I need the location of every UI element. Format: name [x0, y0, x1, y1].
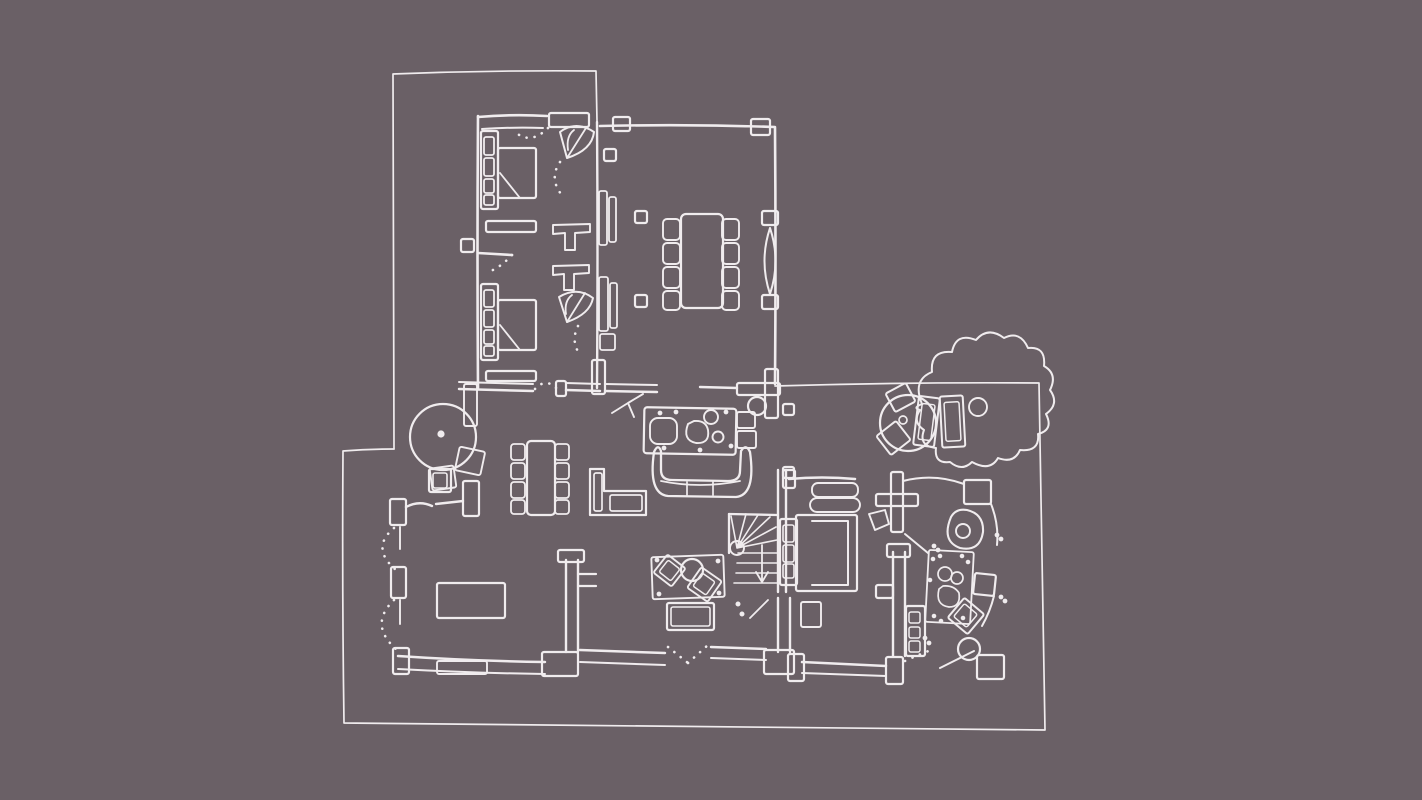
table-dot-4: [730, 445, 733, 448]
corner-dot-6: [928, 642, 931, 645]
dining-floor-post-c: [635, 295, 647, 307]
master-bench-a: [812, 483, 858, 497]
hall-bottom-wall-right-inner: [711, 658, 766, 660]
hall-cushion-a-inner: [659, 560, 680, 581]
bed2-pillow-2: [484, 310, 494, 327]
dining-chair-l4: [663, 291, 680, 310]
garden-basin-drain: [956, 524, 970, 538]
small-stool: [869, 510, 889, 530]
cross-pier-horizontal: [737, 383, 780, 395]
entry-door-dots-a: [668, 647, 688, 663]
kitchen-chair-l1: [511, 444, 525, 460]
stone-dot-1: [932, 558, 934, 560]
kitchen-chair-r2: [555, 463, 569, 479]
stone-dot-5: [933, 615, 935, 617]
hall-partition-cap: [558, 550, 584, 562]
kitchen-chair-l2: [511, 463, 525, 479]
dining-bottom-wall: [605, 391, 657, 392]
breakfast-chair-a: [455, 447, 485, 476]
stone-dot-4: [967, 561, 969, 563]
corridor-east-wall: [597, 122, 598, 388]
wardrobe1-strip-a: [599, 191, 607, 245]
hall-bottom-wall-left-inner: [580, 662, 665, 665]
stone-dot-7: [962, 617, 964, 619]
master-bench-b: [810, 498, 860, 512]
table-dot-5: [699, 449, 702, 452]
kitchen-chair-l4: [511, 500, 525, 514]
stone-blob-3: [938, 586, 959, 607]
bed1-foot-bench: [486, 221, 536, 232]
corner-pier: [592, 360, 605, 394]
corner-dot-4: [1000, 538, 1003, 541]
bed2-foot-bench: [486, 371, 536, 381]
master-top-wall: [789, 478, 855, 480]
dining-chair-l1: [663, 219, 680, 240]
wardrobe2-strip-b: [610, 283, 617, 328]
master-east-cap: [887, 544, 910, 557]
pavilion-cross-pier-h: [876, 494, 918, 506]
kitchen-chair-r4: [555, 500, 569, 514]
pavilion-top-edge: [903, 478, 964, 484]
bedroom-divider-wall: [478, 253, 512, 255]
bedroom1-door-swing-dots: [514, 128, 548, 138]
coffee-table-cushion: [650, 418, 677, 444]
bed2-mattress: [498, 300, 536, 350]
master-east-stub: [876, 585, 893, 598]
bottom-wall-pier-mid: [542, 652, 578, 676]
cabinet-shelf-1: [909, 612, 920, 623]
bedroom2-shower-door-dots: [575, 326, 581, 356]
garden-post-mid: [973, 573, 996, 596]
garden-basin: [948, 510, 984, 549]
bottom-wall-segment-b: [566, 390, 600, 391]
bedroom-wing-top-wall-inner: [482, 128, 543, 129]
master-bottom-pier-b: [886, 657, 903, 684]
kitchen-chair-r3: [555, 482, 569, 498]
hall-bench-inner: [671, 607, 710, 626]
stone-dot-2: [939, 555, 941, 557]
corner-dot-1: [933, 545, 936, 548]
rug-dot-2: [717, 560, 720, 563]
dining-table: [681, 214, 723, 308]
bed2-fold-line: [500, 325, 520, 350]
pavilion-post-top-right: [964, 480, 991, 504]
breakfast-round-table: [410, 404, 476, 470]
patio-lounger-b-inner: [944, 402, 961, 442]
patio-chair-top: [885, 383, 915, 412]
floorplan-sketch: [0, 0, 1422, 800]
master-bottom-wall-inner: [802, 673, 886, 676]
breakfast-table-center-dot: [439, 432, 444, 437]
corner-dot-3: [996, 534, 999, 537]
bed1-mattress: [498, 148, 536, 198]
hall-bottom-wall-left: [580, 650, 665, 653]
pavilion-cross-pier-v: [891, 472, 903, 532]
pavilion-edge-lower-right: [982, 596, 994, 626]
wall-post-b: [783, 467, 794, 478]
round-side-table: [748, 397, 766, 415]
understair-slash: [750, 600, 768, 618]
kitchen-chair-r1: [555, 444, 569, 460]
bedroom-wing-bottom-wall: [459, 389, 533, 391]
bedroom-wing-top-pier: [549, 113, 589, 127]
table-dot-3: [725, 411, 728, 414]
corner-dot-5: [924, 637, 927, 640]
side-table-b: [737, 431, 756, 448]
dining-chair-r2: [722, 243, 739, 264]
french-door-arc-a: [382, 528, 396, 570]
understair-dot-2: [741, 613, 744, 616]
kitchen-chair-l3: [511, 482, 525, 498]
master-pillow-3: [783, 564, 794, 578]
rug-dot-1: [656, 559, 659, 562]
stair-winder-fan: [731, 514, 777, 548]
stair-top-wall: [729, 514, 777, 515]
floor-lamp-mark: [612, 394, 643, 417]
stone-dot-6: [940, 620, 942, 622]
stair-treads: [734, 553, 777, 583]
hall-bottom-wall-right: [711, 647, 766, 649]
garden-tree-trunk: [969, 398, 987, 416]
understair-dot-1: [737, 603, 740, 606]
corner-bench-seat: [610, 495, 642, 511]
bed2-pillow-1: [484, 290, 494, 307]
coffee-table-bowl: [704, 410, 718, 424]
hall-partition-stub: [578, 574, 596, 586]
garden-corner-seat: [977, 655, 1004, 679]
kitchen-island: [437, 583, 505, 618]
dining-top-post-left: [613, 117, 630, 131]
dining-east-door-leaf: [765, 228, 776, 294]
stone-blob-2: [951, 572, 963, 584]
master-under-bed-cabinet: [801, 602, 821, 627]
hall-door-dots: [535, 383, 557, 389]
entry-door-dots-b: [688, 645, 708, 663]
hall-door-pier: [556, 381, 566, 396]
patio-table-center: [899, 416, 907, 424]
stone-blob-1: [938, 567, 952, 581]
bedroom2-desk: [553, 265, 589, 290]
table-dot-1: [659, 412, 662, 415]
bed2-pillow-4: [484, 346, 494, 356]
master-pillow-2: [783, 545, 794, 562]
wardrobe2-strip-a: [599, 277, 608, 331]
bedroom2-door-dots: [488, 255, 512, 272]
bed1-pillow-4: [484, 195, 494, 205]
bedroom-wall-post: [461, 239, 474, 252]
bed2-pillow-3: [484, 330, 494, 344]
dining-top-wall: [600, 125, 775, 127]
bed1-pillow-2: [484, 158, 494, 176]
bedroom1-desk: [553, 224, 590, 250]
wardrobe1-strip-b: [609, 197, 616, 242]
cabinet-shelf-3: [909, 641, 920, 652]
dining-chair-r3: [722, 267, 739, 288]
dining-chair-l2: [663, 243, 680, 264]
stone-dot-3: [961, 555, 963, 557]
table-dot-2: [675, 411, 678, 414]
french-door-arc-b: [382, 600, 397, 650]
bedroom2-shower-inner-arc: [566, 295, 572, 314]
corner-bench-back: [594, 473, 602, 511]
master-pillow-1: [783, 525, 794, 542]
table-dot-6: [663, 447, 666, 450]
dining-floor-post-b: [635, 211, 647, 223]
wall-post-a: [783, 404, 794, 415]
french-door-pier-b: [391, 567, 406, 598]
rug-dot-4: [718, 592, 721, 595]
kitchen-table: [527, 441, 555, 515]
dining-chair-l3: [663, 267, 680, 288]
french-door-pier-a: [390, 499, 406, 525]
master-bottom-pier-a: [788, 654, 804, 681]
bed1-fold-line: [500, 173, 520, 198]
dining-chair-r1: [722, 219, 739, 240]
bedroom1-shower-door-dots: [555, 162, 561, 194]
rug-dot-3: [658, 593, 661, 596]
stone-dot-8: [929, 579, 931, 581]
mid-wall-segment: [700, 387, 737, 388]
family-room-top-wall: [406, 501, 463, 507]
garden-tree-canopy: [916, 332, 1054, 467]
window-table-inner: [433, 473, 447, 488]
bed1-pillow-3: [484, 179, 494, 193]
bed1-pillow-1: [484, 137, 494, 155]
dining-bottom-wall-inner: [605, 384, 657, 385]
bedroom-wing-top-wall: [478, 115, 547, 117]
bottom-wall-segment-b-inner: [566, 383, 600, 384]
coffee-table-tray-blob: [686, 421, 708, 443]
pavilion-edge-right: [991, 504, 997, 545]
cabinet-shelf-2: [909, 627, 920, 638]
family-room-corner-pier: [463, 481, 479, 516]
master-bed-inner: [812, 521, 848, 585]
corner-dot-2: [937, 549, 940, 552]
corner-bench: [590, 469, 646, 515]
floorplan-canvas: [0, 0, 1422, 800]
corner-dot-8: [1004, 600, 1007, 603]
coffee-table-small-bowl: [713, 432, 724, 443]
corner-dot-7: [1000, 596, 1003, 599]
dining-chair-r4: [722, 291, 739, 310]
garden-diamond-chair: [948, 598, 985, 635]
master-bottom-wall: [802, 662, 886, 666]
wardrobe2-base: [600, 334, 615, 350]
dining-floor-post-a: [604, 149, 616, 161]
